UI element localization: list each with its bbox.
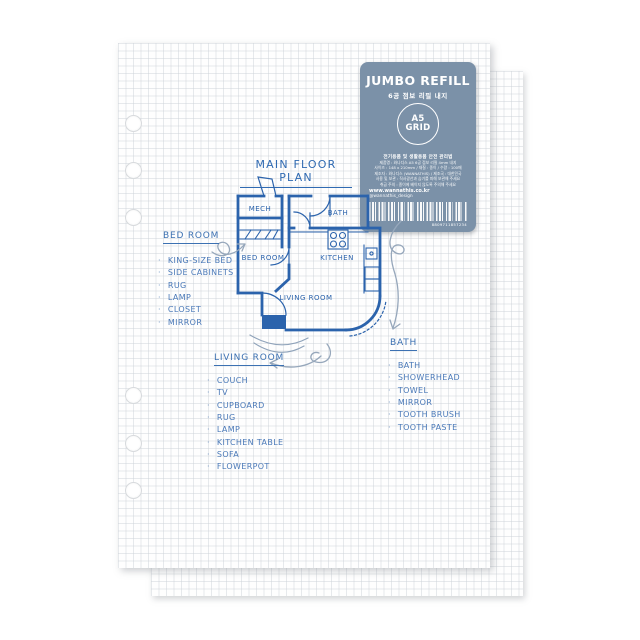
front-door-slab	[262, 315, 286, 329]
list-item: SIDE CABINETS	[158, 267, 234, 279]
page: { "label": { "title": "JUMBO REFILL", "s…	[0, 0, 640, 640]
room-label-kitchen: KITCHEN	[320, 254, 354, 262]
list-item: BATH	[388, 360, 461, 372]
list-item: SOFA	[207, 449, 283, 461]
list-item: RUG	[158, 280, 234, 292]
front-sheet: JUMBO REFILL 6공 점보 리필 내지 A5 GRID 전기용품 및 …	[118, 43, 490, 568]
list-item: KITCHEN TABLE	[207, 437, 283, 449]
list-item: LAMP	[207, 424, 283, 436]
list-item: RUG	[207, 412, 283, 424]
room-label-mech: MECH	[249, 205, 272, 213]
bath-item-list: BATH SHOWERHEAD TOWEL MIRROR TOOTH BRUSH…	[388, 360, 461, 434]
bedroom-arrow	[212, 242, 245, 255]
list-item: CLOSET	[158, 304, 234, 316]
section-heading-bedroom: BED ROOM	[163, 231, 219, 244]
list-item: MIRROR	[388, 397, 461, 409]
section-heading-bath: BATH	[390, 338, 417, 351]
list-item: SHOWERHEAD	[388, 372, 461, 384]
room-label-living: LIVING ROOM	[279, 294, 332, 302]
list-item: TV	[207, 387, 283, 399]
list-item: LAMP	[158, 292, 234, 304]
list-item: FLOWERPOT	[207, 461, 283, 473]
living-item-list: COUCH TV CUPBOARD RUG LAMP KITCHEN TABLE…	[207, 375, 283, 474]
section-heading-living: LIVING ROOM	[214, 353, 284, 366]
list-item: MIRROR	[158, 317, 234, 329]
list-item: TOOTH PASTE	[388, 422, 461, 434]
list-item: CUPBOARD	[207, 400, 283, 412]
room-label-bedroom: BED ROOM	[242, 254, 285, 262]
room-label-bath: BATH	[328, 209, 349, 217]
list-item: TOOTH BRUSH	[388, 409, 461, 421]
bedroom-item-list: KING-SIZE BED SIDE CABINETS RUG LAMP CLO…	[158, 255, 234, 329]
list-item: TOWEL	[388, 385, 461, 397]
list-item: COUCH	[207, 375, 283, 387]
bath-arrow	[390, 221, 404, 329]
list-item: KING-SIZE BED	[158, 255, 234, 267]
